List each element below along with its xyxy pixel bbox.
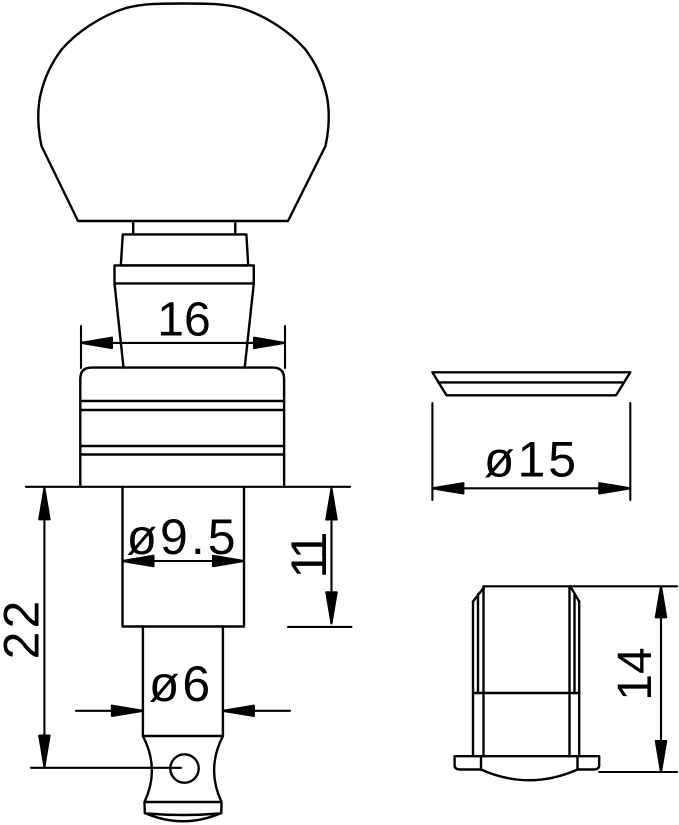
svg-text:22: 22 <box>0 598 50 660</box>
svg-text:ø9.5: ø9.5 <box>126 509 238 565</box>
svg-text:16: 16 <box>157 294 210 347</box>
svg-text:ø6: ø6 <box>149 656 213 712</box>
svg-text:ø15: ø15 <box>484 432 579 488</box>
svg-text:11: 11 <box>281 533 337 578</box>
svg-text:14: 14 <box>609 647 662 700</box>
